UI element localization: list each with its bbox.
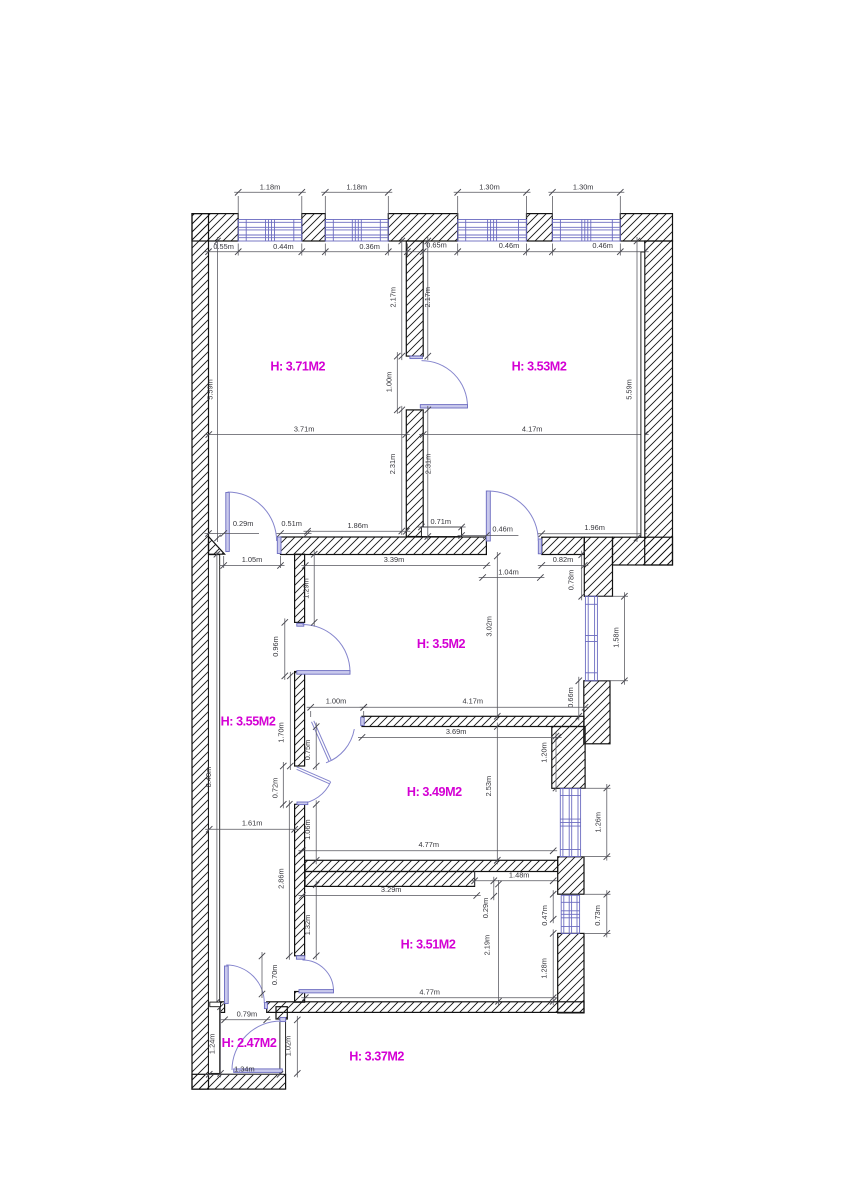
svg-text:1.26m: 1.26m [593, 812, 602, 833]
svg-text:1.02m: 1.02m [284, 1036, 293, 1057]
svg-text:1.32m: 1.32m [303, 915, 312, 936]
svg-text:1.04m: 1.04m [498, 568, 519, 577]
svg-text:2.31m: 2.31m [388, 454, 397, 475]
svg-text:0.66m: 0.66m [566, 687, 575, 708]
svg-text:1.96m: 1.96m [584, 523, 605, 532]
svg-text:5.59m: 5.59m [624, 379, 633, 400]
svg-text:1.05m: 1.05m [242, 555, 263, 564]
svg-text:H: 3.71M2: H: 3.71M2 [270, 360, 325, 374]
svg-text:1.18m: 1.18m [347, 183, 368, 192]
svg-text:0.29m: 0.29m [481, 898, 490, 919]
svg-text:1.30m: 1.30m [479, 183, 500, 192]
svg-text:0.55m: 0.55m [213, 242, 234, 251]
svg-text:3.69m: 3.69m [446, 727, 467, 736]
svg-text:8.40m: 8.40m [204, 767, 213, 788]
svg-text:0.29m: 0.29m [233, 519, 254, 528]
svg-text:0.78m: 0.78m [566, 570, 575, 591]
svg-text:1.00m: 1.00m [326, 697, 347, 706]
svg-text:0.65m: 0.65m [426, 241, 447, 250]
svg-text:1.06m: 1.06m [303, 819, 312, 840]
svg-text:2.17m: 2.17m [389, 287, 398, 308]
svg-text:0.36m: 0.36m [359, 242, 380, 251]
svg-text:1.00m: 1.00m [384, 372, 393, 393]
svg-text:4.77m: 4.77m [419, 988, 440, 997]
svg-text:0.72m: 0.72m [270, 778, 279, 799]
svg-text:0.46m: 0.46m [499, 241, 520, 250]
svg-text:0.82m: 0.82m [553, 555, 574, 564]
svg-text:1.34m: 1.34m [234, 1065, 255, 1074]
svg-text:1.48m: 1.48m [509, 871, 530, 880]
svg-text:2.19m: 2.19m [483, 935, 492, 956]
svg-text:0.51m: 0.51m [281, 519, 302, 528]
svg-text:H: 3.51M2: H: 3.51M2 [401, 938, 456, 952]
svg-text:0.46m: 0.46m [492, 525, 513, 534]
svg-text:4.77m: 4.77m [419, 840, 440, 849]
svg-text:5.59m: 5.59m [206, 379, 215, 400]
svg-text:0.73m: 0.73m [593, 905, 602, 926]
svg-text:0.79m: 0.79m [237, 1010, 258, 1019]
svg-text:3.02m: 3.02m [484, 616, 493, 637]
svg-text:1.86m: 1.86m [348, 521, 369, 530]
svg-text:H: 2.47M2: H: 2.47M2 [222, 1036, 277, 1050]
svg-text:1.58m: 1.58m [612, 627, 621, 648]
svg-text:0.71m: 0.71m [431, 517, 452, 526]
svg-text:0.47m: 0.47m [540, 905, 549, 926]
svg-text:1.61m: 1.61m [242, 819, 263, 828]
svg-text:0.46m: 0.46m [592, 241, 613, 250]
svg-text:0.70m: 0.70m [270, 965, 279, 986]
svg-text:4.17m: 4.17m [463, 697, 484, 706]
svg-text:H: 3.37M2: H: 3.37M2 [349, 1050, 404, 1064]
svg-text:3.29m: 3.29m [381, 885, 402, 894]
svg-text:0.96m: 0.96m [271, 636, 280, 657]
svg-text:1.20m: 1.20m [540, 742, 549, 763]
svg-text:2.86m: 2.86m [276, 868, 285, 889]
svg-text:H: 3.53M2: H: 3.53M2 [512, 360, 567, 374]
svg-text:H: 3.5M2: H: 3.5M2 [417, 637, 466, 651]
svg-text:4.17m: 4.17m [522, 425, 543, 434]
svg-text:1.30m: 1.30m [573, 183, 594, 192]
svg-text:0.44m: 0.44m [273, 242, 294, 251]
svg-text:3.71m: 3.71m [294, 425, 315, 434]
svg-text:3.39m: 3.39m [384, 555, 405, 564]
svg-text:H: 3.55M2: H: 3.55M2 [221, 715, 276, 729]
svg-text:1.24m: 1.24m [207, 1034, 216, 1055]
svg-text:1.29m: 1.29m [302, 578, 311, 599]
svg-text:1.70m: 1.70m [277, 722, 286, 743]
svg-text:0.75m: 0.75m [303, 740, 312, 761]
svg-text:2.31m: 2.31m [423, 454, 432, 475]
svg-text:2.53m: 2.53m [484, 776, 493, 797]
svg-text:2.17m: 2.17m [423, 287, 432, 308]
svg-text:1.18m: 1.18m [260, 183, 281, 192]
svg-text:H: 3.49M2: H: 3.49M2 [407, 785, 462, 799]
svg-text:1.28m: 1.28m [539, 958, 548, 979]
